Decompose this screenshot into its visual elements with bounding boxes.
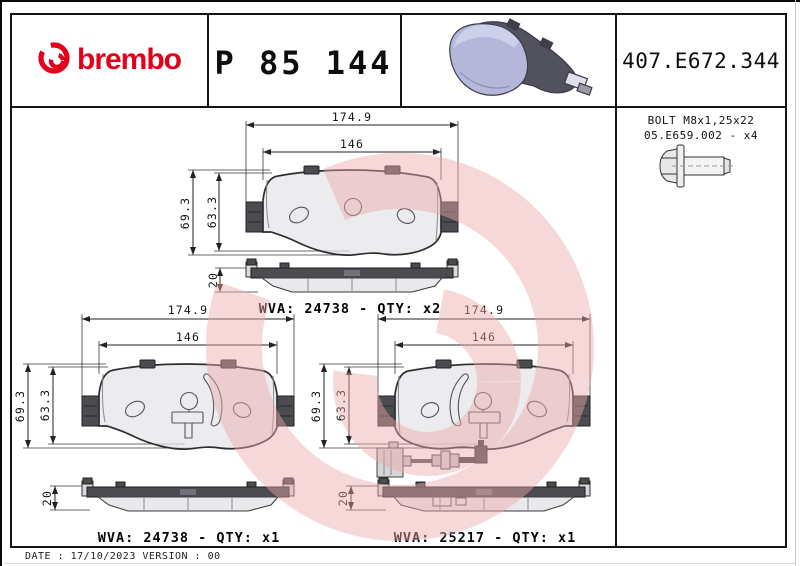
wva-label-bottom-left: WVA: 24738 - QTY: x1 — [39, 530, 339, 546]
pad-front-view — [82, 360, 294, 449]
pad-front-view-mirrored — [378, 360, 590, 449]
dim-thickness: 20 — [336, 490, 350, 506]
dim-total-width: 174.9 — [332, 110, 373, 124]
pad-side-view-mirrored — [378, 478, 590, 511]
dim-thickness: 20 — [206, 272, 220, 288]
dim-total-width: 174.9 — [464, 303, 505, 317]
bolt-icon — [652, 143, 748, 189]
product-photo — [420, 12, 605, 107]
dim-pad-height: 63.3 — [38, 389, 52, 422]
drawing-bottom-left: 174.9 146 69.3 63.3 20 — [0, 298, 310, 550]
scan-edge-top — [0, 0, 800, 2]
drawing-bottom-right: 174.9 146 69.3 63.3 — [296, 298, 606, 550]
pad-side-view — [246, 259, 458, 292]
dim-thickness: 20 — [40, 490, 54, 506]
bolt-part-number: 05.E659.002 - x4 — [617, 129, 785, 142]
dim-pad-height: 63.3 — [205, 196, 219, 229]
pad-front-view — [246, 166, 458, 255]
dim-total-width: 174.9 — [168, 303, 209, 317]
brembo-logo-icon — [34, 39, 76, 81]
dim-pad-height: 63.3 — [334, 389, 348, 422]
scan-edge-bottom — [4, 563, 796, 564]
drawing-top: 174.9 146 69.3 63.3 20 — [180, 110, 480, 315]
part-code: P 85 144 — [207, 44, 400, 82]
datasheet-page: brembo P 85 144 407.E672.344 BOLT M8x1,2… — [0, 0, 800, 566]
dim-total-height: 69.3 — [13, 390, 27, 423]
dim-pad-width: 146 — [340, 137, 364, 151]
divider-right-column — [615, 13, 617, 548]
divider-partcode-cell — [400, 13, 402, 106]
catalog-code: 407.E672.344 — [615, 49, 787, 73]
brand-wordmark: brembo — [77, 43, 181, 77]
dim-pad-width: 146 — [472, 330, 496, 344]
bolt-spec: BOLT M8x1,25x22 — [617, 114, 785, 127]
dim-total-height: 69.3 — [309, 390, 323, 423]
pad-side-view — [82, 478, 294, 511]
wva-label-bottom-right: WVA: 25217 - QTY: x1 — [335, 530, 635, 546]
scan-edge-right — [795, 0, 796, 566]
dim-total-height: 69.3 — [178, 197, 192, 230]
dim-pad-width: 146 — [176, 330, 200, 344]
header-divider — [10, 106, 787, 108]
date-version-line: DATE : 17/10/2023 VERSION : 00 — [25, 551, 221, 562]
